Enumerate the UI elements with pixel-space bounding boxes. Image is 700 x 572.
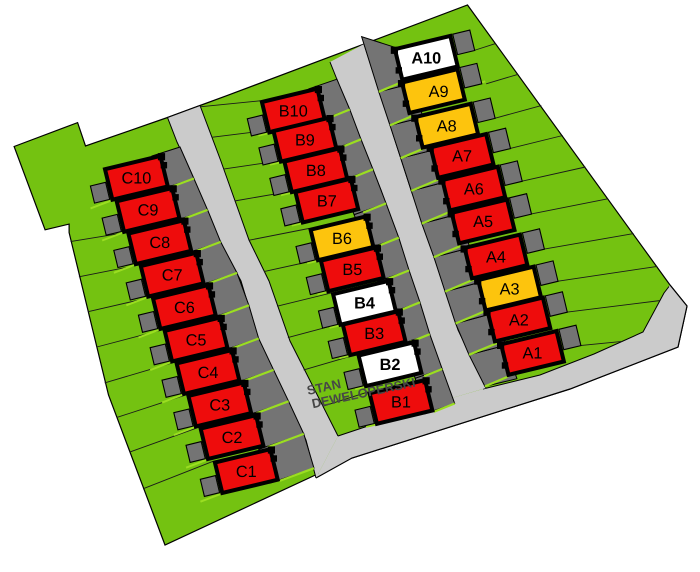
svg-text:C5: C5 (186, 331, 207, 349)
svg-text:A1: A1 (523, 345, 543, 363)
svg-text:B7: B7 (317, 192, 337, 210)
svg-text:A10: A10 (411, 50, 441, 68)
svg-text:C4: C4 (198, 364, 219, 382)
svg-text:C8: C8 (149, 234, 170, 252)
svg-text:A8: A8 (437, 118, 457, 136)
svg-text:A3: A3 (500, 280, 520, 298)
svg-text:B9: B9 (295, 132, 315, 150)
svg-text:C1: C1 (236, 463, 257, 481)
svg-text:C9: C9 (138, 202, 159, 220)
svg-text:B5: B5 (342, 261, 362, 279)
svg-text:B2: B2 (380, 356, 401, 374)
svg-text:A6: A6 (464, 180, 484, 198)
svg-text:C3: C3 (209, 396, 230, 414)
svg-text:C2: C2 (222, 429, 243, 447)
svg-text:A2: A2 (509, 311, 529, 329)
svg-text:B3: B3 (364, 325, 384, 343)
svg-text:C6: C6 (174, 299, 195, 317)
svg-text:C10: C10 (121, 170, 151, 188)
svg-text:A5: A5 (473, 213, 493, 231)
svg-text:B8: B8 (306, 162, 326, 180)
svg-text:B6: B6 (332, 230, 352, 248)
svg-text:C7: C7 (162, 267, 183, 285)
svg-text:B10: B10 (279, 102, 308, 120)
svg-text:A9: A9 (429, 83, 449, 101)
svg-text:A4: A4 (486, 248, 506, 266)
svg-text:B1: B1 (391, 394, 411, 412)
svg-text:A7: A7 (452, 148, 472, 166)
svg-text:B4: B4 (354, 295, 375, 313)
